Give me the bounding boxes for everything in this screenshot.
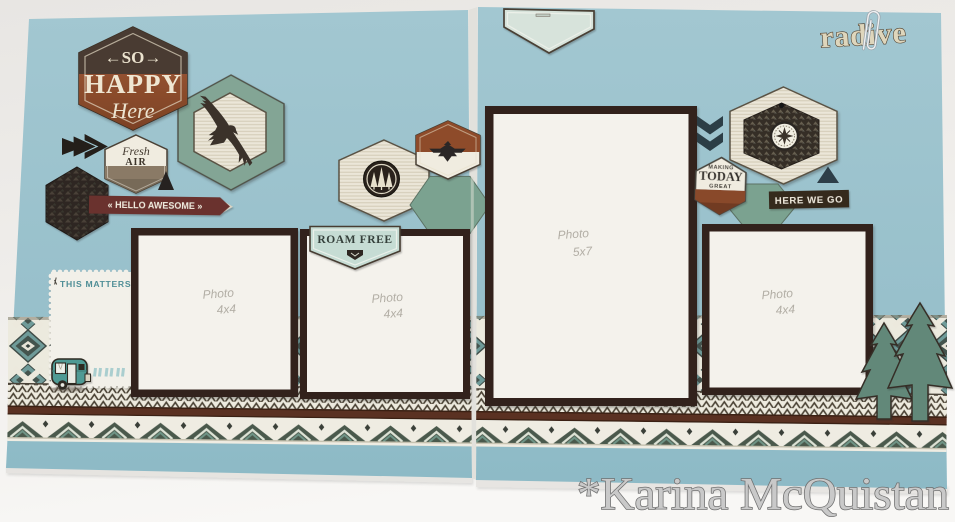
svg-text:*Karina McQuistan: *Karina McQuistan	[577, 468, 949, 519]
svg-text:ROAM FREE: ROAM FREE	[317, 234, 392, 246]
svg-text:Fresh: Fresh	[121, 144, 150, 158]
svg-text:HERE WE GO: HERE WE GO	[775, 194, 844, 206]
svg-text:4x4: 4x4	[216, 301, 237, 316]
svg-text:GREAT: GREAT	[709, 184, 732, 191]
svg-text:Here: Here	[110, 98, 154, 123]
svg-text:Photo: Photo	[761, 286, 794, 302]
svg-text:4x4: 4x4	[775, 302, 796, 317]
svg-text:Photo: Photo	[557, 226, 590, 242]
svg-text:Photo: Photo	[371, 290, 404, 306]
svg-text:TODAY: TODAY	[699, 169, 743, 185]
svg-text:←SO→: ←SO→	[105, 48, 162, 67]
svg-text:5x7: 5x7	[572, 244, 594, 259]
svg-text:4x4: 4x4	[383, 306, 404, 321]
svg-text:« HELLO AWESOME »: « HELLO AWESOME »	[108, 200, 203, 211]
svg-text:AIR: AIR	[125, 157, 146, 168]
svg-text:Photo: Photo	[202, 286, 235, 302]
svg-text:THIS MATTERS: THIS MATTERS	[60, 279, 131, 289]
svg-text:HAPPY: HAPPY	[84, 69, 182, 99]
